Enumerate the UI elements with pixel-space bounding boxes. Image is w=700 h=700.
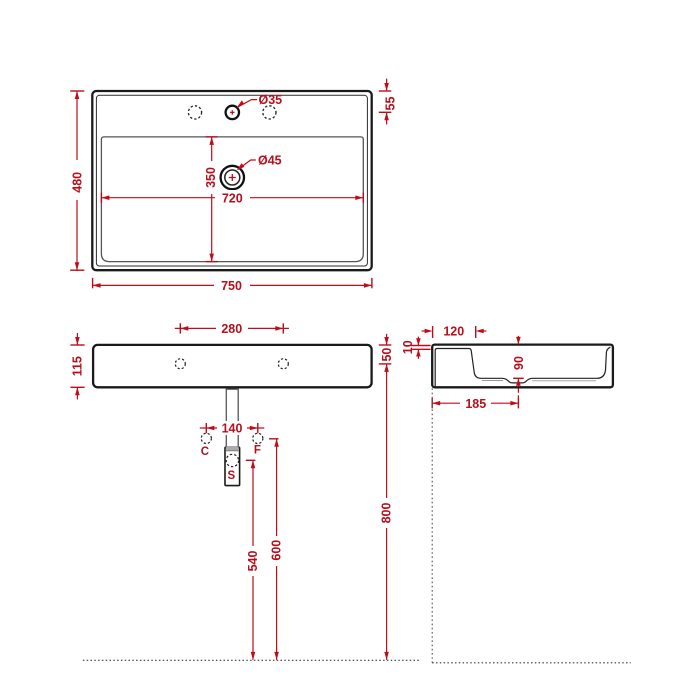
svg-text:540: 540 (246, 551, 260, 572)
svg-text:C: C (201, 446, 209, 458)
svg-text:115: 115 (71, 356, 85, 376)
svg-text:50: 50 (380, 348, 394, 362)
svg-text:F: F (254, 445, 261, 457)
svg-text:S: S (227, 470, 235, 482)
svg-text:280: 280 (221, 322, 242, 336)
svg-text:Ø45: Ø45 (258, 153, 282, 167)
svg-text:10: 10 (401, 340, 415, 354)
svg-text:55: 55 (384, 97, 398, 111)
svg-text:185: 185 (465, 397, 486, 411)
svg-text:120: 120 (443, 324, 464, 338)
svg-text:720: 720 (222, 191, 243, 205)
svg-text:480: 480 (71, 172, 85, 193)
svg-text:Ø35: Ø35 (259, 93, 283, 107)
svg-text:600: 600 (270, 540, 284, 561)
svg-text:90: 90 (512, 356, 526, 370)
svg-text:800: 800 (380, 503, 394, 524)
svg-text:140: 140 (222, 422, 243, 436)
svg-text:350: 350 (204, 167, 218, 188)
svg-text:750: 750 (221, 279, 242, 293)
